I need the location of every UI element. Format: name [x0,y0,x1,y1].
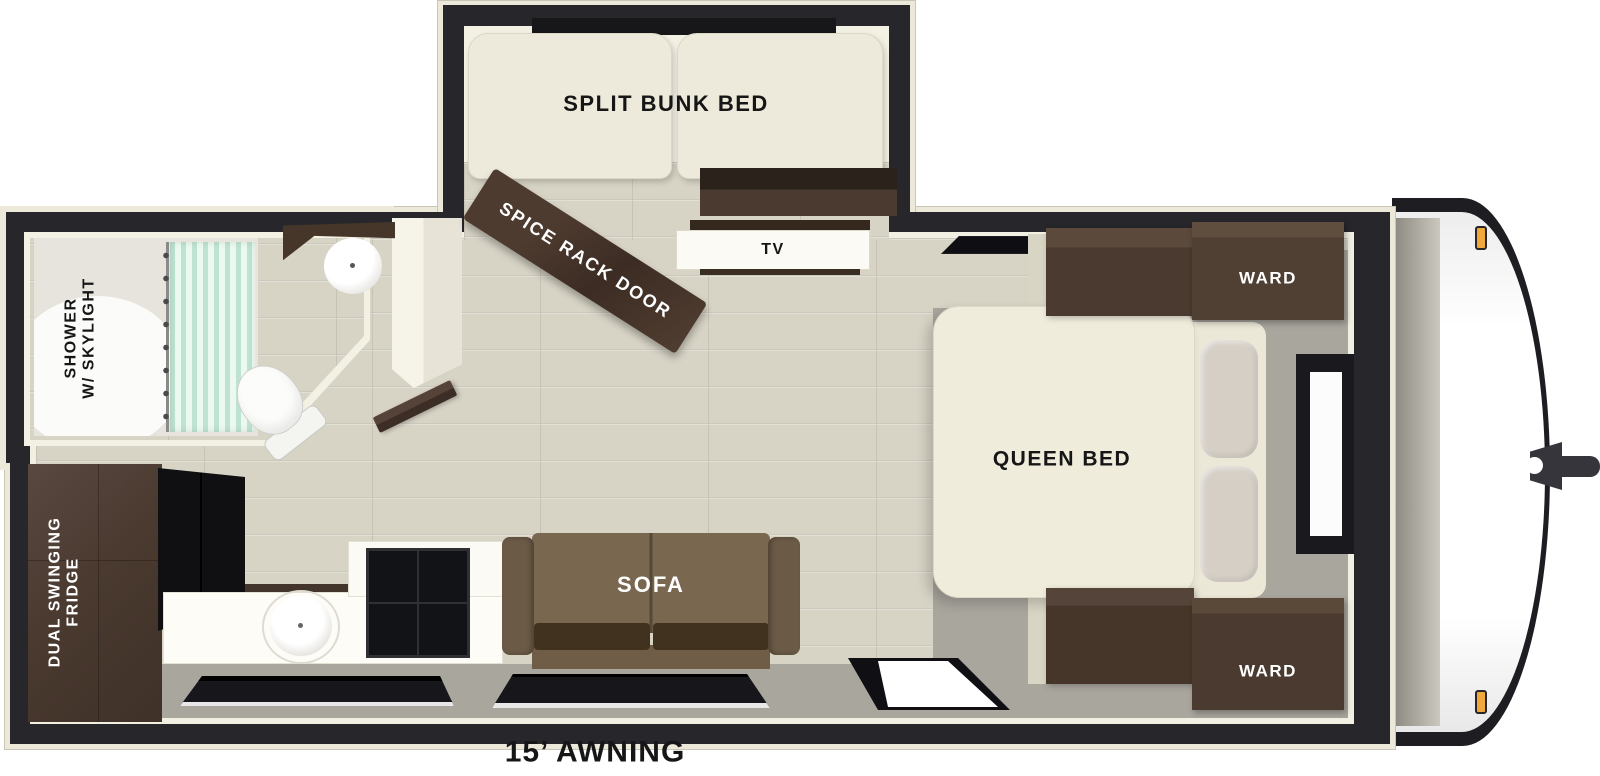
ward-top-label: WARD [1239,269,1297,288]
ward-bottom-label: WARD [1239,663,1297,682]
bed-platform-edge-bottom [1028,592,1046,684]
hitch-notch-icon [1526,457,1543,474]
sofa: SOFA [502,533,800,669]
queen-bed-label: QUEEN BED [932,447,1192,470]
overbed-cabinet-bottom [1046,588,1194,684]
sofa-label: SOFA [617,573,685,597]
ward-bottom: WARD [1192,598,1344,710]
window-sofa-icon [482,672,772,710]
marker-light-bottom-icon [1475,690,1487,714]
window-kitchen-icon [178,676,456,708]
floorplan-canvas: SPLIT BUNK BED SHOWER W/ SKYLIGHT SPICE … [0,0,1600,776]
linen-cabinet [392,218,462,388]
awning-label: 15’ AWNING [395,736,795,769]
sofa-seat-right [653,623,769,650]
shower-label: SHOWER W/ SKYLIGHT [62,238,97,438]
kitchen-sink-icon [270,596,332,656]
bunk-dresser [700,168,897,216]
bedroom-window-icon [1296,354,1354,554]
cooktop-icon [366,548,470,658]
tv-cabinet-base [700,269,860,275]
hitch-arm-icon [1558,456,1600,477]
sofa-seat-left [534,623,650,650]
split-bunk-bed-label: SPLIT BUNK BED [466,92,866,116]
fridge-label: DUAL SWINGING FRIDGE [46,492,81,692]
bath-sink-drain-icon [350,263,355,268]
headboard-pillow-bottom-icon [1200,466,1258,582]
headboard-pillow-top-icon [1200,340,1258,458]
tv-label: TV [761,241,784,259]
overbed-cabinet-top [1046,228,1194,316]
bedroom-window-glass-icon [1310,372,1342,536]
tv-cabinet: TV [676,230,870,270]
nose-front-wall-shade [1396,218,1440,726]
kitchen-sink-drain-icon [298,623,303,628]
ward-top: WARD [1192,222,1344,320]
shower-curtain-hooks-icon [161,244,171,432]
entry-door-icon [840,654,1016,712]
sofa-armrest-left [502,537,534,655]
sofa-armrest-right [768,537,800,655]
bath-sink-icon [324,238,382,294]
fridge-cabinet-seam [98,464,99,722]
bed-platform-edge-top [1028,234,1046,316]
marker-light-top-icon [1475,226,1487,250]
